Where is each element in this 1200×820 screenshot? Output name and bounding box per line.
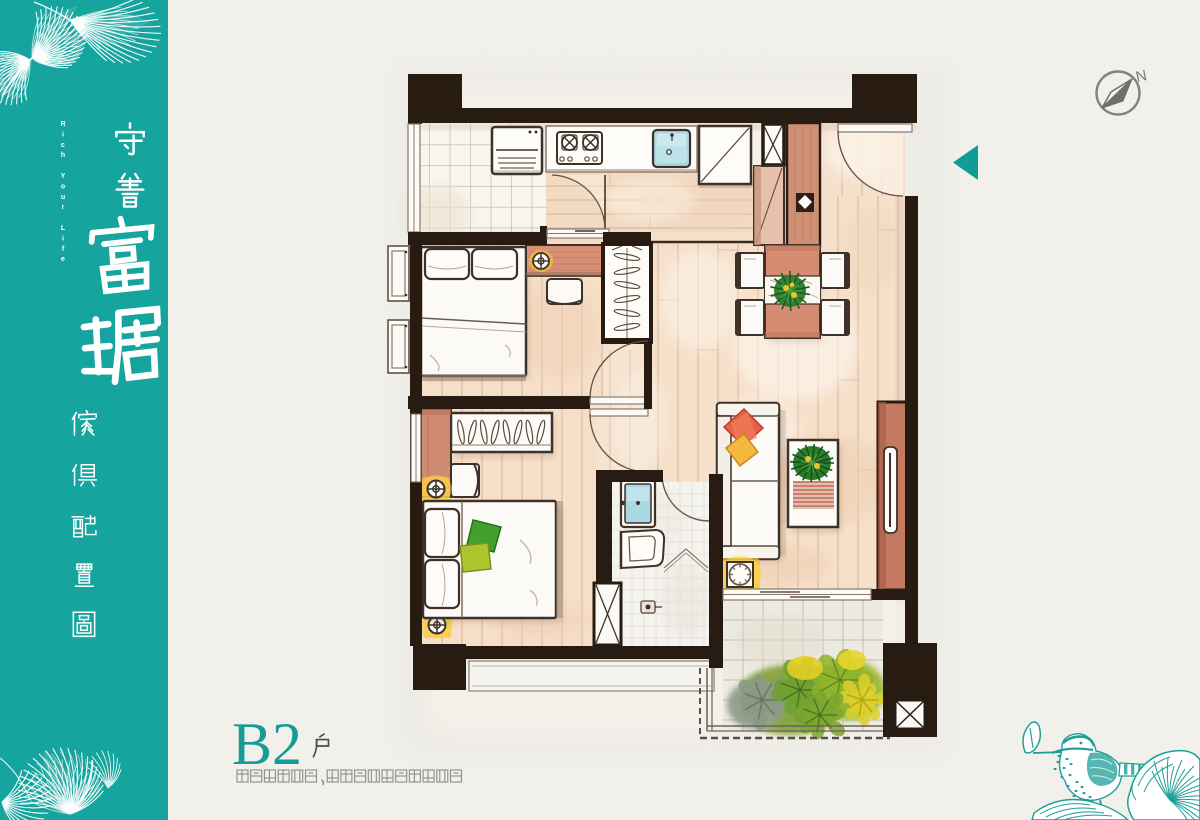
svg-text:B2: B2	[232, 711, 302, 777]
